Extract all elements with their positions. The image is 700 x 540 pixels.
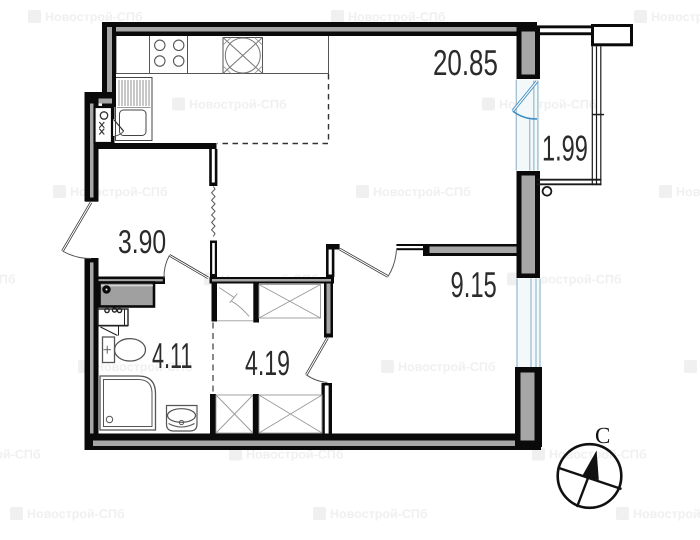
svg-text:Новострой-СПб: Новострой-СПб	[348, 10, 446, 24]
svg-text:Новострой-СПб: Новострой-СПб	[0, 273, 16, 287]
svg-text:20.85: 20.85	[433, 42, 498, 83]
svg-text:Новострой-СПб: Новострой-СПб	[0, 448, 41, 462]
svg-text:3.90: 3.90	[118, 223, 166, 260]
svg-text:4.11: 4.11	[152, 335, 192, 376]
svg-text:Новострой-СПб: Новострой-СПб	[189, 98, 287, 112]
svg-text:Новострой-СПб: Новострой-СПб	[633, 507, 700, 521]
svg-text:1.99: 1.99	[542, 128, 588, 169]
svg-text:Новострой-СПб: Новострой-СПб	[330, 507, 428, 521]
svg-text:Новострой-СПб: Новострой-СПб	[398, 360, 496, 374]
svg-text:Новострой-СПб: Новострой-СПб	[45, 10, 143, 24]
svg-text:9.15: 9.15	[451, 264, 497, 305]
svg-text:С: С	[595, 423, 610, 448]
svg-text:Новострой-СПб: Новострой-СПб	[27, 507, 125, 521]
svg-text:Новострой-СПб: Новострой-СПб	[373, 185, 471, 199]
svg-text:Новострой-СПб: Новострой-СПб	[676, 185, 700, 199]
svg-text:4.19: 4.19	[245, 344, 290, 383]
svg-text:Новострой-СПб: Новострой-СПб	[651, 10, 700, 24]
